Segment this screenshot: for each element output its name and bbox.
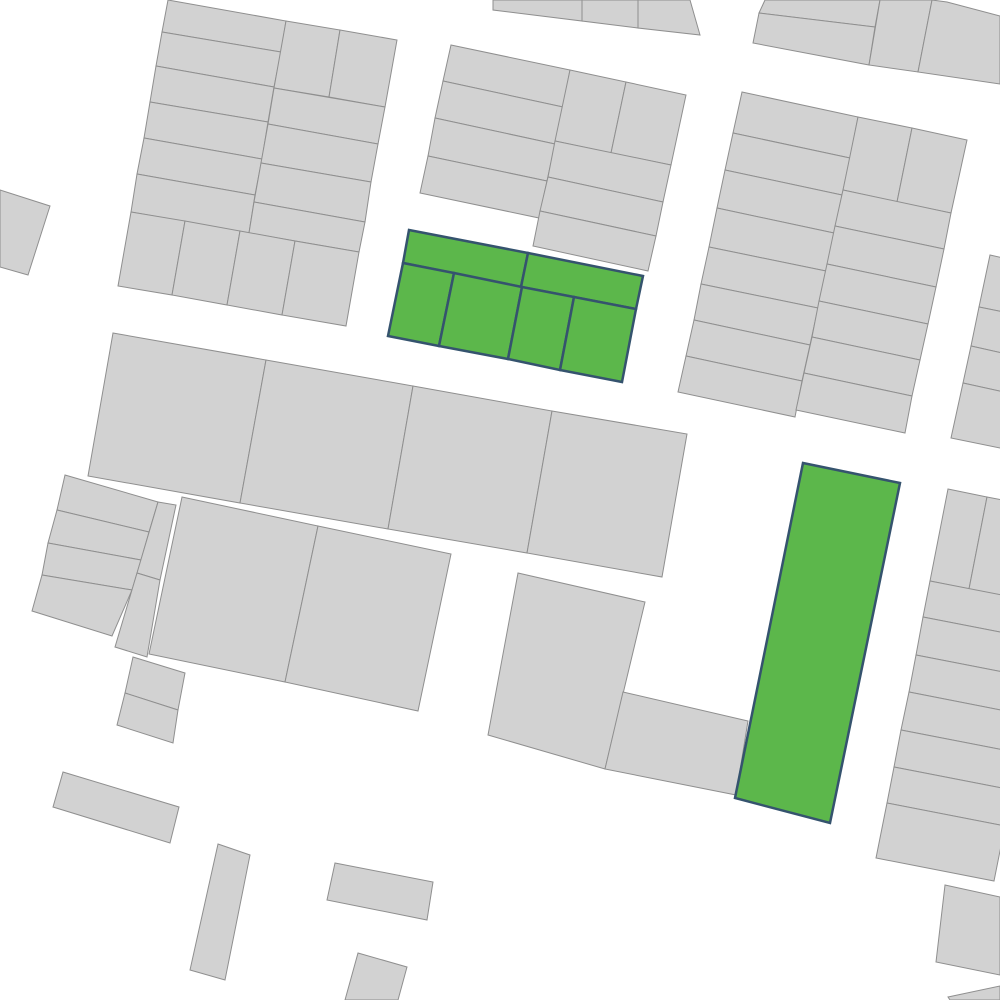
parcel[interactable] (190, 844, 250, 980)
parcel[interactable] (88, 333, 266, 503)
parcel[interactable] (918, 0, 1000, 84)
parcel[interactable] (936, 885, 1000, 975)
map-canvas[interactable] (0, 0, 1000, 1000)
map-viewport[interactable] (0, 0, 1000, 1000)
parcel[interactable] (388, 386, 552, 553)
parcel[interactable] (345, 953, 407, 1000)
parcel[interactable] (493, 0, 582, 21)
highlighted-parcel[interactable] (735, 463, 900, 823)
parcel[interactable] (582, 0, 638, 28)
parcel[interactable] (274, 21, 340, 97)
parcel[interactable] (53, 772, 179, 843)
parcel[interactable] (605, 692, 748, 795)
parcel[interactable] (948, 986, 1000, 1000)
parcel[interactable] (951, 383, 1000, 450)
parcel[interactable] (527, 411, 687, 577)
parcel[interactable] (329, 30, 397, 107)
parcel[interactable] (240, 360, 413, 529)
parcel[interactable] (327, 863, 433, 920)
parcel[interactable] (0, 190, 50, 275)
parcel[interactable] (638, 0, 700, 35)
parcel[interactable] (282, 241, 359, 326)
highlighted-parcel[interactable] (560, 297, 636, 382)
